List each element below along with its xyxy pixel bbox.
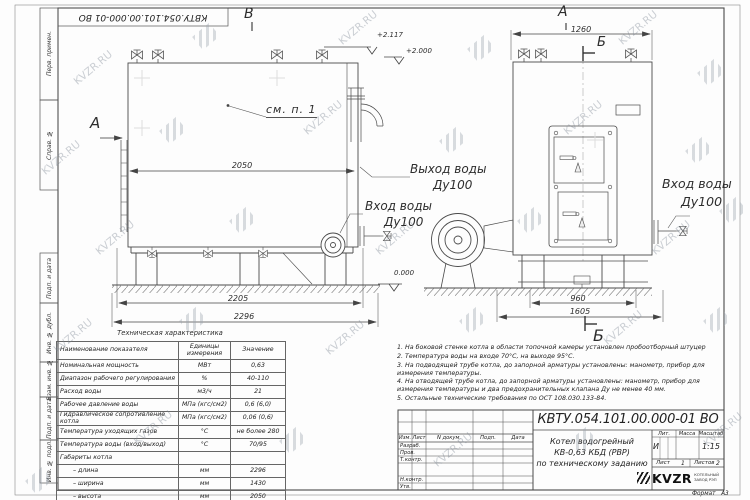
spec-value: 0,6 (6,0) <box>231 399 286 412</box>
dim-2050: 2050 <box>232 161 252 170</box>
tb-role-nkontr: Н.контр. <box>400 477 423 483</box>
spec-unit: МПа (кгс/см2) <box>179 412 231 426</box>
spec-name: Номинальная мощность <box>57 360 179 373</box>
tb-col-podp: Подп. <box>480 435 496 441</box>
dim-1260: 1260 <box>571 25 591 34</box>
tb-scale-label: Масштаб <box>699 431 724 437</box>
elevation-zero: 0.000 <box>394 269 414 277</box>
table-row: – длинамм2296 <box>57 465 286 478</box>
table-row: – ширинамм1430 <box>57 478 286 491</box>
spec-value: не более 280 <box>231 426 286 439</box>
logo-subtext: КОТЕЛЬНЫЙ ЗАВОД РЭП <box>694 473 719 482</box>
dim-1605: 1605 <box>570 307 590 316</box>
logo-text: KVZR <box>652 471 692 486</box>
spec-value: 0,06 (0,6) <box>231 412 286 426</box>
logo-sub-line: ЗАВОД РЭП <box>694 478 719 483</box>
spec-unit: мм <box>179 491 231 500</box>
spec-unit: мм <box>179 465 231 478</box>
designation-rotated: КВТУ.054.101.00.000-01 ВО <box>58 8 228 26</box>
inlet-water-label: Вход воды <box>365 199 432 213</box>
boiler-side-view <box>121 63 383 285</box>
spec-name: – высота <box>57 491 179 500</box>
elevation-top: +2.117 <box>377 31 403 39</box>
table-row: Рабочее давление водыМПа (кгс/см2)0,6 (6… <box>57 399 286 412</box>
spec-name: – длина <box>57 465 179 478</box>
spec-value: 2050 <box>231 491 286 500</box>
spec-table: Наименование показателя Единицы измерени… <box>56 341 286 500</box>
tb-doc-name-3: по техническому заданию <box>536 459 647 468</box>
see-item-callout: см. п. 1 <box>266 103 317 118</box>
view-mark-a-left: А <box>90 114 100 132</box>
tb-scale-value: 1:15 <box>702 442 720 451</box>
tb-sheet-value: 1 <box>681 460 685 467</box>
dim-2205: 2205 <box>228 294 248 303</box>
spec-unit: м3/ч <box>179 386 231 399</box>
tb-col-dokum: N докум. <box>437 435 461 441</box>
frame-label-text: Справ. № <box>46 130 53 160</box>
frame-label-text: Подп. и дата <box>46 258 53 299</box>
frame-label-text: Инв. № дубл. <box>46 312 53 354</box>
spring-icon <box>637 472 650 484</box>
elevation-mid: +2.000 <box>406 47 432 55</box>
outlet-water-dn: Ду100 <box>433 178 472 192</box>
spec-name: Температура воды (вход/выход) <box>57 439 179 452</box>
tb-sheet-label: Лист <box>656 460 670 466</box>
inlet-water-dn: Ду100 <box>384 215 423 229</box>
table-row: – высотамм2050 <box>57 491 286 500</box>
spec-unit: °С <box>179 439 231 452</box>
spec-header-row: Наименование показателя Единицы измерени… <box>57 342 286 360</box>
spec-table-title: Техническая характеристика <box>117 329 223 337</box>
view-mark-v-top: В <box>244 6 254 22</box>
table-row: Расход водым3/ч21 <box>57 386 286 399</box>
spec-unit: МВт <box>179 360 231 373</box>
section-mark-b-bottom: Б <box>593 326 604 345</box>
valve-icons-left-view <box>132 50 392 257</box>
spec-name: Габариты котла <box>57 452 179 465</box>
spec-name: – ширина <box>57 478 179 491</box>
note-item: 3. На подводящей трубе котла, до запорно… <box>397 362 725 378</box>
frame-label-text: Взам. инв. № <box>46 359 53 401</box>
tb-role-tkontr: Т.контр. <box>400 457 422 463</box>
spec-name: Расход воды <box>57 386 179 399</box>
inlet-water-right-dn: Ду100 <box>681 194 722 209</box>
spec-value: 70/95 <box>231 439 286 452</box>
spec-header: Единицы измерения <box>179 342 231 360</box>
spec-name: Рабочее давление воды <box>57 399 179 412</box>
tb-doc-name-1: Котел водогрейный <box>550 437 634 446</box>
format-label: Формат <box>692 491 716 497</box>
tb-mass-label: Масса <box>679 431 696 437</box>
tb-doc-name-2: КВ-0,63 КБД (РВР) <box>554 448 630 457</box>
view-mark-a-top: А <box>558 4 568 20</box>
frame-label-text: Подп. и дата <box>46 398 53 439</box>
spec-name: Диапазон рабочего регулирования <box>57 373 179 386</box>
inlet-water-right-label: Вход воды <box>662 176 732 191</box>
note-item: 5. Остальные технические требования по О… <box>397 395 725 403</box>
tb-role-razrab: Разраб. <box>400 443 420 449</box>
technical-notes: 1. На боковой стенке котла в области топ… <box>397 344 725 404</box>
drawing-sheet: КВТУ.054.101.00.000-01 ВО Перв. примен. … <box>0 0 750 500</box>
spec-value: 21 <box>231 386 286 399</box>
tb-sheets-label: Листов <box>694 460 715 466</box>
spec-unit <box>179 452 231 465</box>
spec-unit: мм <box>179 478 231 491</box>
table-row: Температура воды (вход/выход)°С70/95 <box>57 439 286 452</box>
tb-lit-value: И <box>653 442 659 451</box>
table-row: Температура уходящих газов°Сне более 280 <box>57 426 286 439</box>
spec-header: Наименование показателя <box>57 342 179 360</box>
frame-label-perv-primen: Перв. примен. <box>40 8 58 100</box>
frame-label-text: Инв. № подл. <box>46 440 53 482</box>
tb-role-utv: Утв. <box>400 484 411 490</box>
spec-name: Температура уходящих газов <box>57 426 179 439</box>
section-mark-b-top: Б <box>597 35 606 50</box>
format-note: Формат А3 <box>692 491 729 497</box>
spec-value: 1430 <box>231 478 286 491</box>
table-row: Габариты котла <box>57 452 286 465</box>
spec-value <box>231 452 286 465</box>
tb-sheets-value: 2 <box>716 460 720 467</box>
table-row: Диапазон рабочего регулирования%40-110 <box>57 373 286 386</box>
spec-value: 0,63 <box>231 360 286 373</box>
frame-label-podp-data-1: Подп. и дата <box>40 253 58 303</box>
kvzr-logo: KVZR КОТЕЛЬНЫЙ ЗАВОД РЭП <box>633 468 723 488</box>
format-value: А3 <box>721 491 729 497</box>
frame-label-sprav: Справ. № <box>40 100 58 190</box>
note-item: 2. Температура воды на входе 70°С, на вы… <box>397 353 725 361</box>
spec-value: 2296 <box>231 465 286 478</box>
tb-role-prov: Пров. <box>400 450 415 456</box>
note-item: 4. На отводящей трубе котла, до запорной… <box>397 378 725 394</box>
table-row: Номинальная мощностьМВт0,63 <box>57 360 286 373</box>
frame-label-text: Перв. примен. <box>46 31 53 76</box>
spec-value: 40-110 <box>231 373 286 386</box>
title-block-designation: КВТУ.054.101.00.000-01 ВО <box>537 412 718 427</box>
dim-2296: 2296 <box>234 312 254 321</box>
tb-col-data: Дата <box>511 435 524 441</box>
outlet-water-label: Выход воды <box>410 162 486 176</box>
spec-name: Гидравлическое сопротивление котла <box>57 412 179 426</box>
spec-unit: МПа (кгс/см2) <box>179 399 231 412</box>
tb-col-list: Лист <box>412 435 425 441</box>
tb-lit-label: Лит. <box>658 431 670 437</box>
spec-header: Значение <box>231 342 286 360</box>
tb-col-izm: Изм. <box>399 435 411 441</box>
spec-unit: % <box>179 373 231 386</box>
table-row: Гидравлическое сопротивление котлаМПа (к… <box>57 412 286 426</box>
spec-unit: °С <box>179 426 231 439</box>
note-item: 1. На боковой стенке котла в области топ… <box>397 344 725 352</box>
dim-960: 960 <box>570 294 585 303</box>
